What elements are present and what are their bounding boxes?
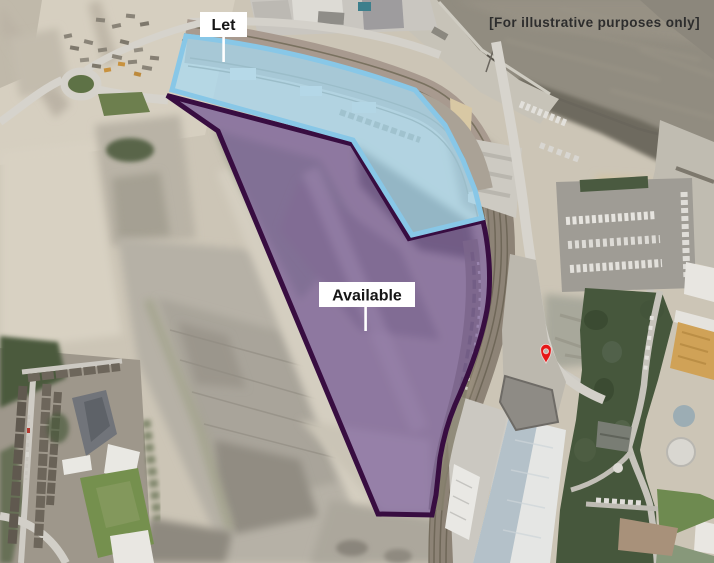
svg-text:Available: Available bbox=[332, 288, 402, 305]
svg-text:[For illustrative purposes onl: [For illustrative purposes only] bbox=[489, 15, 700, 30]
svg-text:Let: Let bbox=[212, 17, 237, 34]
